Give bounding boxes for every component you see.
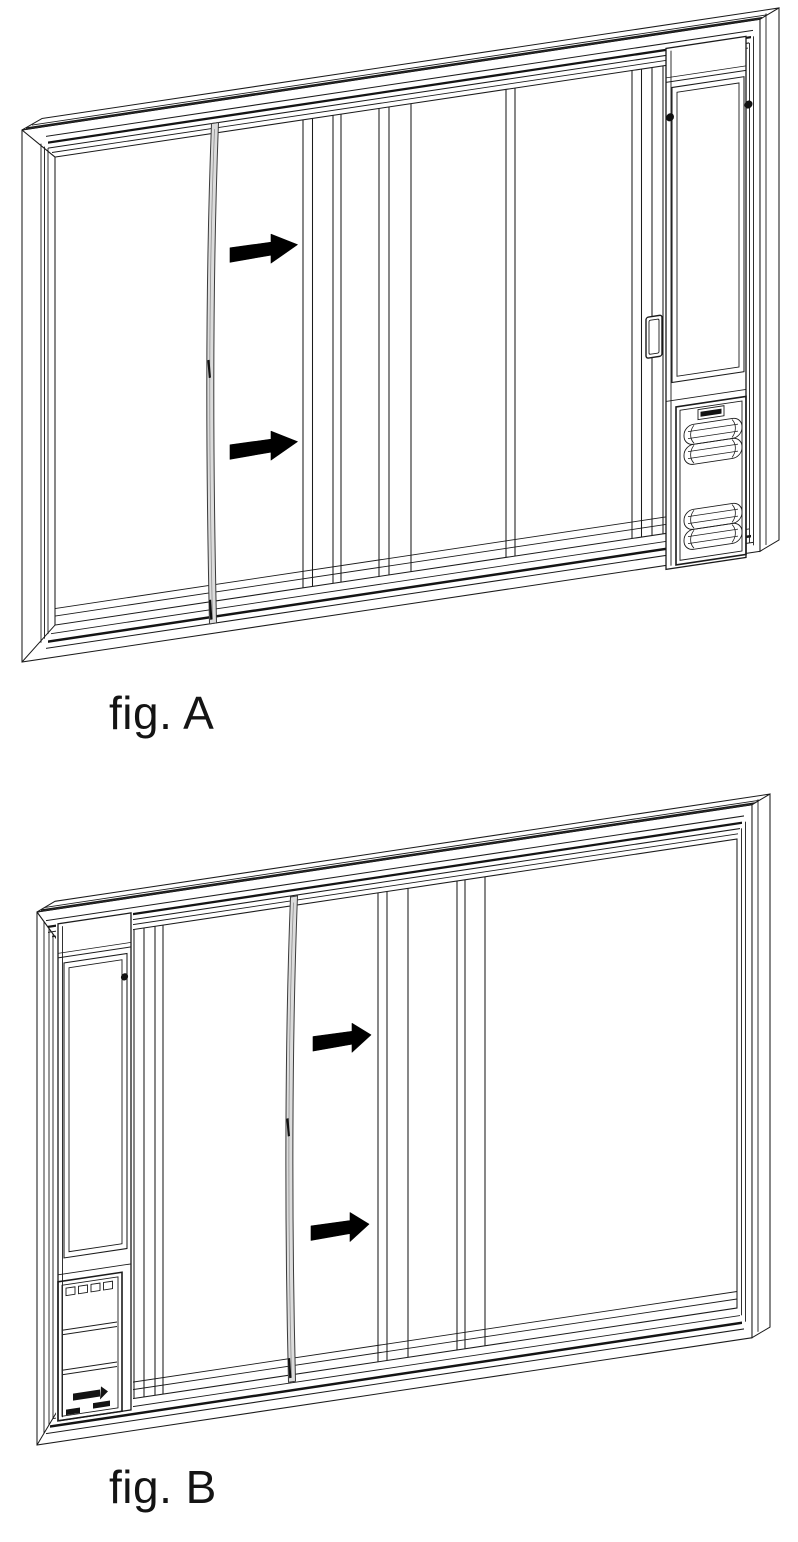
frame-right-face-b [752, 794, 770, 1338]
figure-b-label: fig. B [109, 1461, 217, 1513]
figure-a: fig. A [22, 8, 779, 739]
pet-door-insert-a [666, 35, 753, 569]
figure-a-drawing [22, 8, 779, 666]
figure-b: fig. B [37, 794, 770, 1513]
figure-b-drawing [37, 794, 770, 1445]
diagram-page: fig. A [0, 0, 798, 1542]
door-handle-a [646, 315, 662, 358]
pet-door-insert-b [56, 913, 133, 1422]
figure-a-label: fig. A [109, 687, 214, 739]
frame-right-face-a [760, 8, 779, 551]
sliding-door-instruction-diagram: fig. A [0, 0, 798, 1542]
door-frame-b [37, 794, 770, 1445]
